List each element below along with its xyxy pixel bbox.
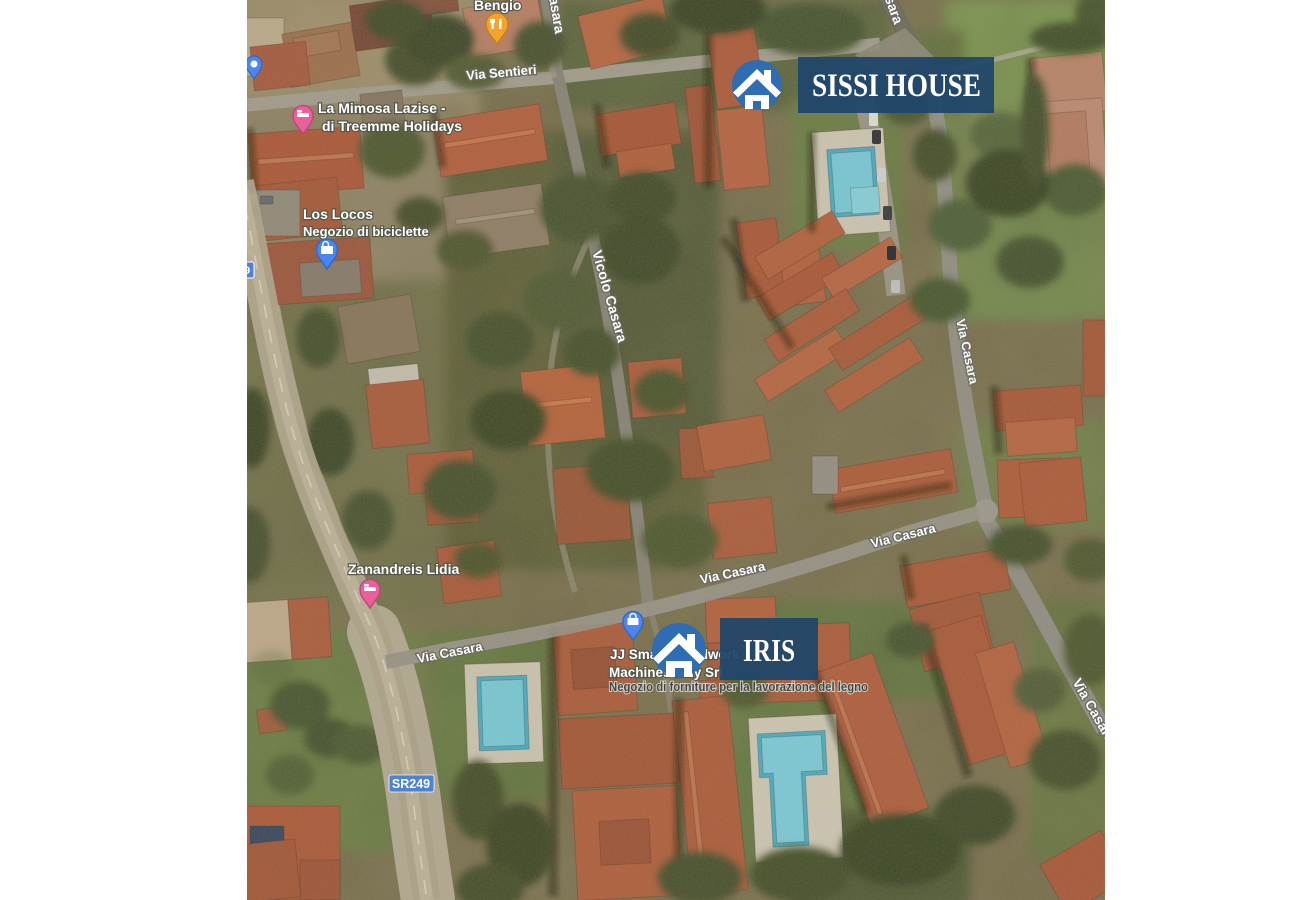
svg-text:Los Locos: Los Locos <box>303 206 373 222</box>
svg-text:La Mimosa Lazise -: La Mimosa Lazise - <box>318 100 446 116</box>
svg-text:Bengio: Bengio <box>474 0 521 13</box>
svg-text:SISSI HOUSE: SISSI HOUSE <box>812 68 981 104</box>
svg-text:Negozio di biciclette: Negozio di biciclette <box>303 224 429 239</box>
svg-text:SR249: SR249 <box>392 777 430 791</box>
svg-text:Negozio di forniture per la la: Negozio di forniture per la lavorazione … <box>609 680 868 694</box>
svg-text:di Treemme Holidays: di Treemme Holidays <box>322 118 462 134</box>
svg-text:IRIS: IRIS <box>743 632 795 668</box>
svg-text:Zanandreis Lidia: Zanandreis Lidia <box>348 561 459 577</box>
